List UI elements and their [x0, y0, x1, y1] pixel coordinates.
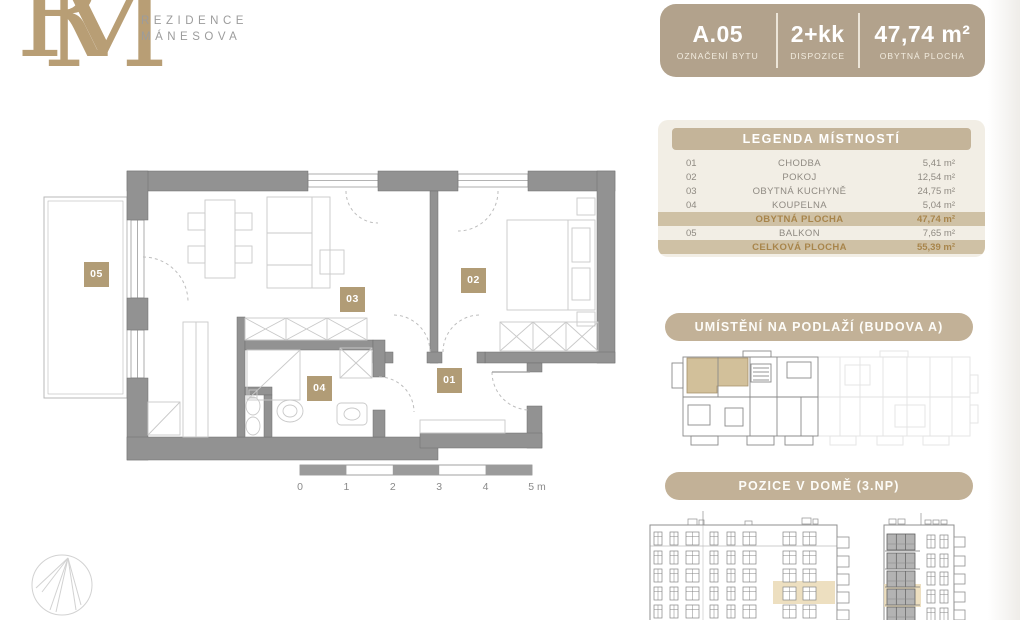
- room-label-04: 04: [307, 376, 332, 401]
- walls: [127, 171, 615, 460]
- scale-tick-1: 1: [343, 481, 349, 493]
- unit-number: A.05: [692, 21, 743, 48]
- scale-tick-0: 0: [297, 481, 303, 493]
- section-floor-location: UMÍSTĚNÍ NA PODLAŽÍ (BUDOVA A): [665, 313, 973, 341]
- room-label-05: 05: [84, 262, 109, 287]
- scale-tick-2: 2: [390, 481, 396, 493]
- legend-row: 01 CHODBA 5,41 m²: [658, 156, 985, 170]
- page-edge-shade: [988, 0, 1020, 620]
- north-arrow-icon: [32, 555, 92, 615]
- side-elevation: [884, 513, 965, 620]
- brochure-page: R M REZIDENCE MÁNESOVA A.05 OZNAČENÍ BYT…: [0, 0, 1020, 620]
- legend-row-living-area-total: OBYTNÁ PLOCHA 47,74 m²: [658, 212, 985, 226]
- area-label: OBYTNÁ PLOCHA: [880, 51, 965, 61]
- front-elevation: [650, 511, 849, 620]
- brand-name: REZIDENCE MÁNESOVA: [141, 13, 248, 45]
- legend-row: 02 POKOJ 12,54 m²: [658, 170, 985, 184]
- balcony-outline: [44, 197, 127, 398]
- highlighted-apartment: [687, 358, 748, 393]
- furniture: [148, 197, 598, 437]
- room-label-01: 01: [437, 368, 462, 393]
- room-label-02: 02: [461, 268, 486, 293]
- badge-unit: A.05 OZNAČENÍ BYTU: [660, 13, 776, 68]
- scale-tick-3: 3: [436, 481, 442, 493]
- floor-location-map: [655, 350, 985, 450]
- legend-row: 05 BALKON 7,65 m²: [658, 226, 985, 240]
- scale-bar: 0 1 2 3 4 5 m: [297, 465, 546, 493]
- room-legend-panel: LEGENDA MÍSTNOSTÍ 01 CHODBA 5,41 m² 02 P…: [658, 120, 985, 257]
- scale-tick-5: 5 m: [528, 481, 546, 493]
- layout-value: 2+kk: [791, 21, 845, 48]
- room-label-03: 03: [340, 287, 365, 312]
- unit-number-label: OZNAČENÍ BYTU: [677, 51, 759, 61]
- area-value: 47,74 m²: [874, 21, 970, 48]
- badge-layout: 2+kk DISPOZICE: [776, 13, 858, 68]
- section-house-position: POZICE V DOMĚ (3.NP): [665, 472, 973, 500]
- building-elevations: [640, 505, 985, 620]
- badge-area: 47,74 m² OBYTNÁ PLOCHA: [858, 13, 985, 68]
- apartment-badge: A.05 OZNAČENÍ BYTU 2+kk DISPOZICE 47,74 …: [660, 4, 985, 77]
- brand-line1: REZIDENCE: [141, 13, 248, 29]
- legend-row: 04 KOUPELNA 5,04 m²: [658, 198, 985, 212]
- layout-label: DISPOZICE: [790, 51, 845, 61]
- scale-tick-4: 4: [483, 481, 489, 493]
- door-swings: [143, 191, 530, 412]
- legend-row-total-area: CELKOVÁ PLOCHA 55,39 m²: [658, 240, 985, 254]
- legend-title: LEGENDA MÍSTNOSTÍ: [672, 128, 971, 150]
- legend-row: 03 OBYTNÁ KUCHYNĚ 24,75 m²: [658, 184, 985, 198]
- logo-monogram: R M: [14, 0, 149, 100]
- brand-line2: MÁNESOVA: [141, 29, 248, 45]
